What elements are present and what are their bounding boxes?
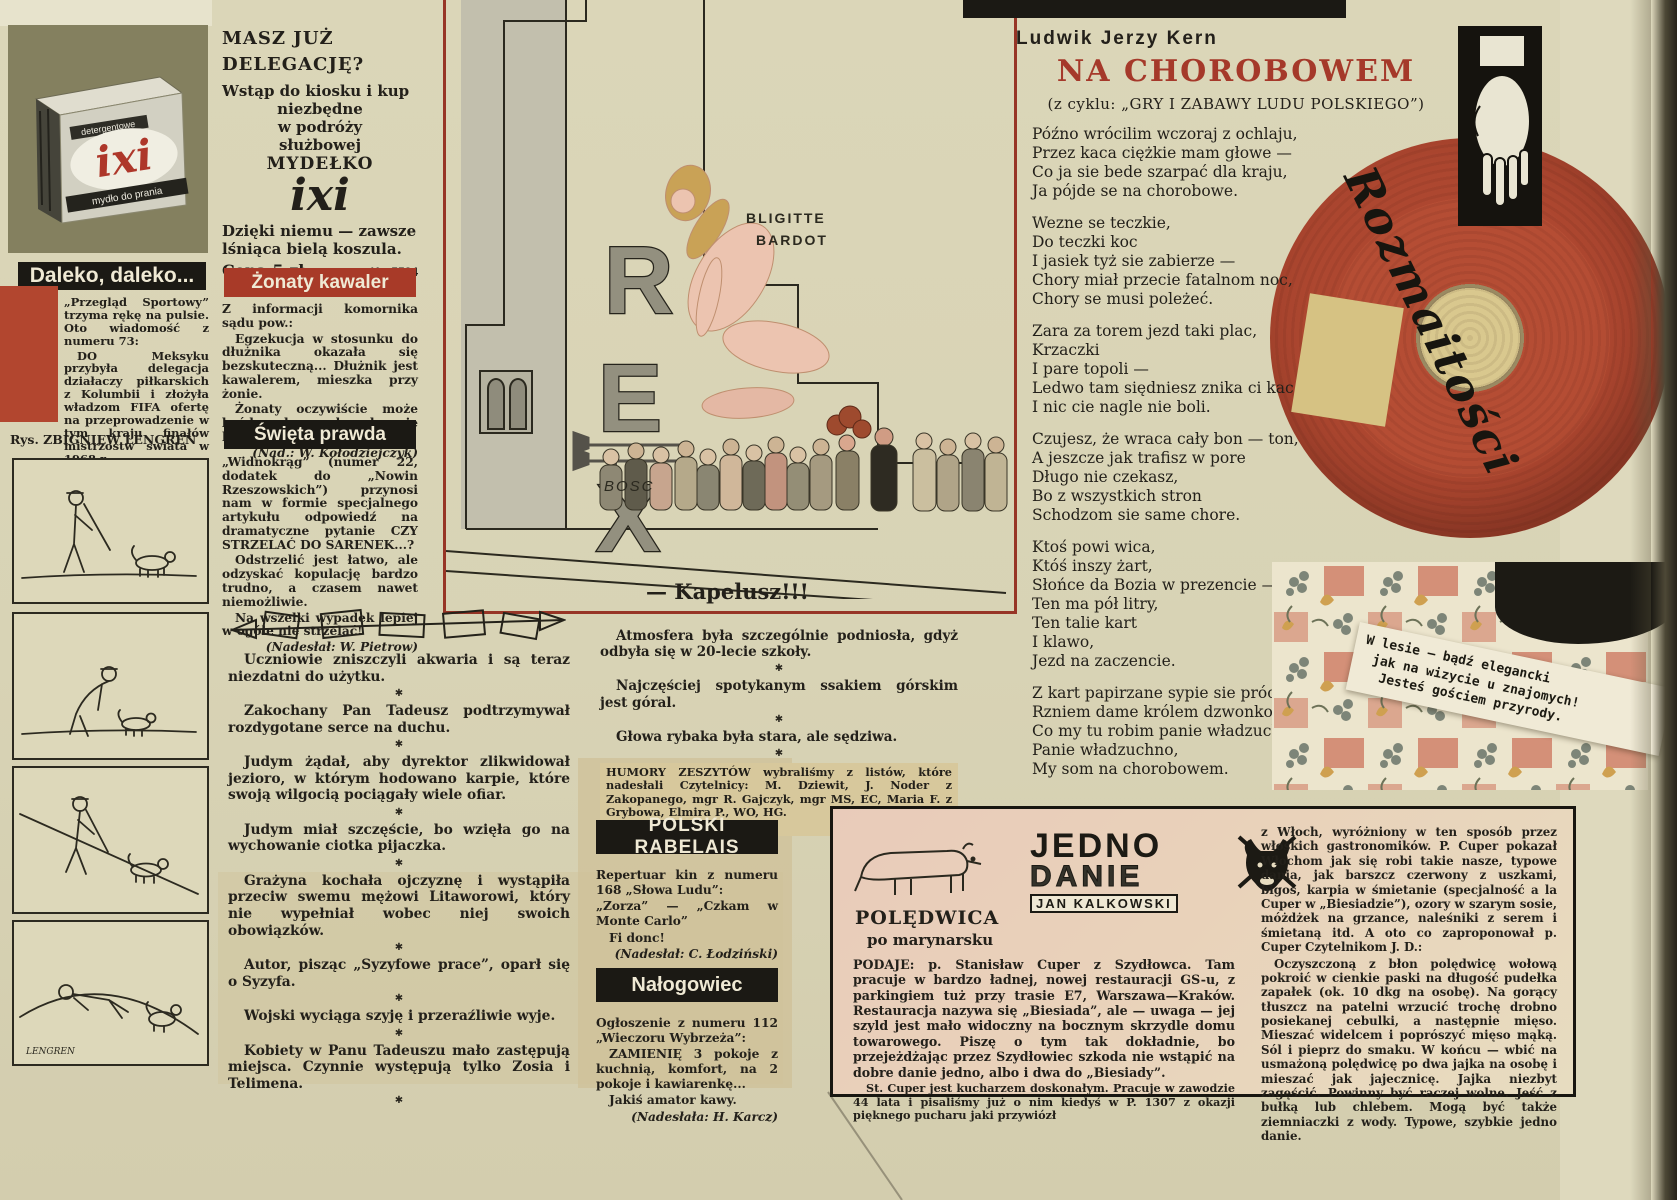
poem-line: Ledwo tam siędniesz znika ci kac [1032,379,1456,398]
swieta-p1: „Widnokrąg” (numer 22, dodatek do „Nowin… [222,456,418,552]
school-humor-quote: Wojski wyciąga szyję i przeraźliwie wyje… [228,1008,570,1025]
nalogowiec-header: Nałogowiec [596,968,778,1002]
recipe-title: POLĘDWICA [855,907,999,929]
hand-photo-block [1458,26,1542,226]
zonaty-p1: Z informacji komornika sądu pow.: [222,303,418,331]
poem-stanza-3: Zara za torem jezd taki plac, Krzaczki I… [1032,322,1456,417]
rabelais-p1: Repertuar kin z numeru 168 „Słowa Ludu”: [596,868,778,897]
rex-letter-r: R [604,227,673,334]
poem-line: Bo z wszystkich stron [1032,487,1456,506]
school-humor-quote: Judym żądał, aby dyrektor zlikwidował je… [228,754,570,804]
nalogowiec-title: Nałogowiec [631,974,742,997]
comic-panel-2 [12,612,209,760]
poem-line: I pare topoli — [1032,360,1456,379]
school-humor-quote: Głowa rybaka była stara, ale sędziwa. [600,729,958,745]
rabelais-p3: Fi donc! [596,931,778,946]
poster-name-line2: BARDOT [756,232,828,248]
ixi-line-4: służbowej [222,136,418,154]
school-humor-quote: Najczęściej spotykanym ssakiem górskim j… [600,678,958,710]
school-humor-quote: Zakochany Pan Tadeusz podtrzymywał rozdy… [228,703,570,736]
daleko-p1: „Przegląd Sportowy” trzyma rękę na pulsi… [64,296,209,348]
school-humor-quote: Autor, pisząc „Syzyfowe prace”, oparł si… [228,957,570,990]
school-humor-left-column: Uczniowie zniszczyli akwaria i są teraz … [228,652,570,1110]
ixi-line-1: Wstąp do kiosku i kup [222,82,418,100]
ixi-ad-text: MASZ JUŻ DELEGACJĘ? Wstąp do kiosku i ku… [222,28,418,280]
recipe-right-p1: z Włoch, wyróżniony w ten sposób przez w… [1261,825,1557,955]
stamp-jan-kalkowski: JAN KALKOWSKI [1030,894,1178,913]
star-separator-icon: ✱ [600,749,958,759]
comic-panel-4: LENGREN [12,920,209,1066]
star-separator-icon: ✱ [228,808,570,818]
page-edge-shadow-right [1630,0,1677,1200]
nalogowiec-body: Ogłoszenie z numeru 112 „Wieczoru Wybrze… [596,1016,778,1126]
recipe-left-p2: St. Cuper jest kucharzem doskonałym. Pra… [853,1082,1235,1123]
recipe-subtitle: po marynarsku [867,931,993,949]
recipe-left-column: PODAJE: p. Stanisław Cuper z Szydłowca. … [853,957,1235,1125]
rex-letter-e: E [598,345,662,452]
hand-illustration [1458,26,1542,226]
poem-line: Krzaczki [1032,341,1456,360]
rabelais-p2: „Zorza” — „Czkam w Monte Carlo” [596,899,778,928]
daleko-title: Daleko, daleko... [30,264,195,288]
nalogowiec-p2: ZAMIENIĘ 3 pokoje z kuchnią, komfort, na… [596,1047,778,1091]
cartoon-caption: — Kapelusz!!! [646,579,809,604]
stamp-danie: DANIE [1030,862,1250,892]
ixi-slogan-1: Dzięki niemu — zawsze [222,222,418,240]
poem-author: Ludwik Jerzy Kern [1016,28,1456,50]
school-humor-quote: Grażyna kochała ojczyznę i wystąpiła prz… [228,873,570,939]
nalogowiec-p1: Ogłoszenie z numeru 112 „Wieczoru Wybrze… [596,1016,778,1045]
star-separator-icon: ✱ [228,1096,570,1106]
star-separator-icon: ✱ [228,740,570,750]
zonaty-title: Żonaty kawaler [251,272,388,294]
poem-line: Przez kaca ciężkie mam głowe — [1032,144,1456,163]
lengren-credit-text: Rys. ZBIGNIEW LENGREN [10,432,196,447]
rabelais-body: Repertuar kin z numeru 168 „Słowa Ludu”:… [596,868,778,964]
school-humor-quote: Atmosfera była szczególnie podniosła, gd… [600,628,958,660]
top-black-bar [963,0,1346,18]
paper-edge-top-left [0,0,212,26]
zonaty-header: Żonaty kawaler [224,268,416,297]
ixi-headline-1: MASZ JUŻ [222,28,418,49]
poem-line: Czujesz, że wraca cały bon — ton, [1032,430,1456,449]
lengren-credit: Rys. ZBIGNIEW LENGREN [10,432,196,447]
star-separator-icon: ✱ [228,689,570,699]
jedno-danie-stamp: JEDNO DANIE JAN KALKOWSKI [1030,831,1250,913]
poem-line: Ktoś powi wica, [1032,538,1456,557]
newspaper-page: detergentowe ixi mydło do prania Daleko,… [0,0,1677,1200]
ixi-box-brand: ixi [92,130,156,187]
swieta-header: Święta prawda [224,420,416,449]
ixi-slogan-2: lśniąca bielą koszula. [222,240,418,258]
rabelais-credit: (Nadesłał: C. Łodziński) [596,947,778,962]
squiggle-decoration [230,600,566,652]
recipe-subtitle-text: po marynarsku [867,931,993,949]
recipe-right-p2: Oczyszczoną z błon polędwicę wołową pokr… [1261,957,1557,1144]
poem-stanza-4: Czujesz, że wraca cały bon — ton, A jesz… [1032,430,1456,525]
cow-doodle [851,837,991,897]
poem-title: NA CHOROBOWEM [1016,54,1456,89]
recipe-left-p1: PODAJE: p. Stanisław Cuper z Szydłowca. … [853,957,1235,1080]
poem-line: I nic cie nagle nie boli. [1032,398,1456,417]
zonaty-p2: Egzekucja w stosunku do dłużnika okazała… [222,333,418,402]
school-humor-center-intro: Atmosfera była szczególnie podniosła, gd… [600,628,958,836]
star-separator-icon: ✱ [600,664,958,674]
ixi-brand-big: ixi [222,174,418,218]
red-block-left-margin [0,286,58,422]
lengren-signature: LENGREN [25,1047,76,1057]
school-humor-quote: Judym miał szczęście, bo wzięła go na wy… [228,822,570,855]
comic-panel-1 [12,458,209,604]
ixi-soap-ad-photo: detergentowe ixi mydło do prania [8,25,208,253]
school-humor-quote: Kobiety w Panu Tadeuszu mało zastępują m… [228,1043,570,1093]
bosc-cartoon-frame: R E X BLIGITTE BARDOT [443,0,1017,614]
ixi-line-2: niezbędne [222,100,418,118]
comic-panel-3 [12,766,209,914]
jedno-danie-recipe-box: JEDNO DANIE JAN KALKOWSKI POLĘDWICA po m… [830,806,1576,1097]
star-separator-icon: ✱ [228,994,570,1004]
recipe-title-text: POLĘDWICA [855,907,999,929]
poem-line: Schodzom sie same chore. [1032,506,1456,525]
bosc-signature: BOSC [604,478,655,495]
poster-name-line1: BLIGITTE [746,210,826,226]
poem-line: A jeszcze jak trafisz w pore [1032,449,1456,468]
swieta-title: Święta prawda [254,424,386,446]
school-humor-quote: Uczniowie zniszczyli akwaria i są teraz … [228,652,570,685]
stamp-jedno: JEDNO [1030,831,1250,862]
star-separator-icon: ✱ [228,859,570,869]
nalogowiec-credit: (Nadesłała: H. Karcz) [596,1110,778,1125]
poem-line: Długo nie czekasz, [1032,468,1456,487]
star-separator-icon: ✱ [228,943,570,953]
rabelais-header: POLSKI RABELAIS [596,820,778,854]
cartoon-caption-text: — Kapelusz!!! [646,579,809,604]
ixi-line-3: w podróży [222,118,418,136]
ixi-headline-2: DELEGACJĘ? [222,54,418,75]
nalogowiec-p3: Jakiś amator kawy. [596,1093,778,1108]
poem-line: Późno wrócilim wczoraj z ochlaju, [1032,125,1456,144]
rabelais-title: POLSKI RABELAIS [596,815,778,859]
star-separator-icon: ✱ [228,1029,570,1039]
poem-line: Zara za torem jezd taki plac, [1032,322,1456,341]
recipe-right-column: z Włoch, wyróżniony w ten sposób przez w… [1261,825,1557,1146]
star-separator-icon: ✱ [600,715,958,725]
daleko-p2: DO Meksyku przybyła delegacja działaczy … [64,350,209,466]
bosc-cartoon-drawing: R E X BLIGITTE BARDOT [446,0,1008,599]
poem-subtitle: (z cyklu: „GRY I ZABAWY LUDU POLSKIEGO”) [1016,95,1456,113]
ixi-soap-box-drawing: detergentowe ixi mydło do prania [8,25,208,253]
